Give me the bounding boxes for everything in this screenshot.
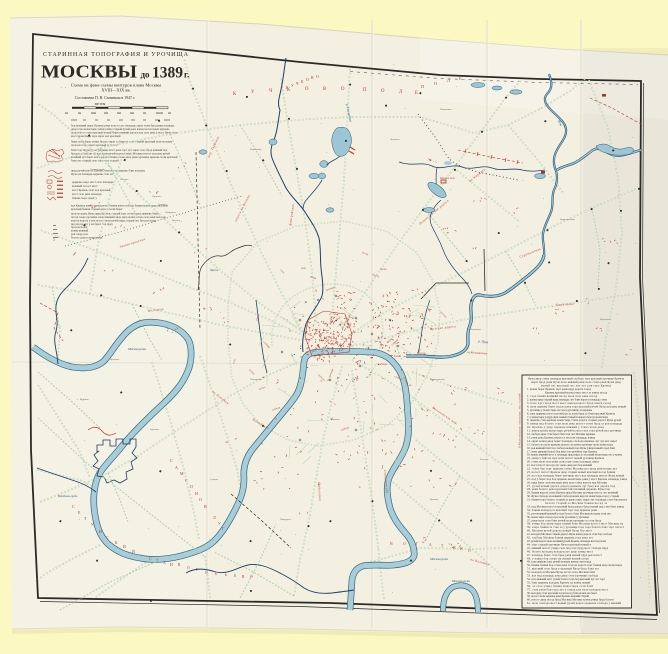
svg-text:Воробьево: Воробьево xyxy=(470,328,482,331)
svg-text:Дорогомилово: Дорогомилово xyxy=(560,218,576,221)
svg-text:С: С xyxy=(170,458,173,463)
svg-text:А: А xyxy=(429,543,432,547)
svg-text:О: О xyxy=(306,78,309,82)
svg-text:холмъ: холмъ xyxy=(394,355,401,358)
svg-text:Лужники: Лужники xyxy=(330,418,340,421)
svg-text:Красное: Красное xyxy=(172,219,180,222)
svg-text:Кудрино: Кудрино xyxy=(80,398,89,401)
svg-text:болото дорога монастырь: болото дорога монастырь xyxy=(71,236,103,240)
svg-text:О: О xyxy=(468,549,471,553)
svg-text:Кожевники: Кожевники xyxy=(250,148,262,151)
svg-text:Сущево: Сущево xyxy=(210,478,219,481)
svg-text:Ч: Ч xyxy=(269,89,272,94)
svg-text:А: А xyxy=(175,465,178,470)
svg-text:Составлена П. В. Сытиным в 194: Составлена П. В. Сытиным в 1947 г. xyxy=(75,96,135,100)
svg-text:Н: Н xyxy=(460,547,463,551)
svg-text:Воробьевы пруды: Воробьевы пруды xyxy=(58,495,78,498)
svg-text:Р: Р xyxy=(196,568,198,572)
svg-text:XVIII—XIX вв.: XVIII—XIX вв. xyxy=(101,88,130,93)
svg-text:Напрудное: Напрудное xyxy=(280,518,291,521)
svg-text:О: О xyxy=(434,81,437,86)
svg-text:Красное село: Красное село xyxy=(440,177,455,180)
svg-text:Напрудное: Напрудное xyxy=(165,211,176,214)
svg-text:Хамовники: Хамовники xyxy=(250,378,262,381)
svg-text:село: село xyxy=(301,267,307,270)
svg-text:У: У xyxy=(218,521,221,526)
svg-text:В: В xyxy=(323,87,326,92)
svg-text:Й: Й xyxy=(132,549,135,554)
svg-text:О: О xyxy=(187,566,190,570)
svg-text:Красное: Красное xyxy=(430,498,438,501)
svg-text:Н: Н xyxy=(390,542,393,546)
svg-text:О: О xyxy=(316,75,319,79)
svg-text:Пресня: Пресня xyxy=(209,269,219,272)
svg-text:Крутицы: Крутицы xyxy=(110,358,120,361)
svg-text:У: У xyxy=(291,84,294,88)
svg-text:Н: Н xyxy=(195,491,198,496)
svg-text:Воробьево: Воробьево xyxy=(600,318,612,321)
svg-text:И: И xyxy=(453,546,456,550)
svg-text:башня озеро овраг у: башня озеро овраг у xyxy=(72,196,98,200)
svg-text:Яузы на площадь церковь стан л: Яузы на площадь церковь стан лес xyxy=(71,172,115,176)
svg-text:Сущево: Сущево xyxy=(158,203,167,206)
svg-text:А: А xyxy=(163,561,166,565)
svg-text:МОСКВЫ: МОСКВЫ xyxy=(41,62,137,82)
svg-text:1389: 1389 xyxy=(152,65,183,82)
svg-text:новый лес красный лес луг лес: новый лес красный лес луг лес ров гора К… xyxy=(541,384,612,387)
svg-text:1: 1 xyxy=(53,237,55,242)
svg-text:О: О xyxy=(190,484,193,489)
svg-text:О: О xyxy=(199,497,202,502)
svg-text:П: П xyxy=(421,84,424,89)
svg-text:Е: Е xyxy=(459,76,462,81)
svg-text:Н: Н xyxy=(170,563,173,567)
svg-text:М: М xyxy=(180,471,184,476)
svg-text:О: О xyxy=(205,571,208,575)
svg-text:Л: Л xyxy=(447,78,450,83)
svg-text:Л: Л xyxy=(213,515,216,520)
svg-text:И: И xyxy=(123,545,126,549)
svg-text:О: О xyxy=(381,89,385,94)
svg-text:Сыромятники: Сыромятники xyxy=(90,168,105,171)
svg-text:С: С xyxy=(185,478,188,483)
svg-text:МЕТРЫ: МЕТРЫ xyxy=(95,102,106,106)
svg-text:У: У xyxy=(251,90,255,95)
svg-text:61. поле слобода мост новый ру: 61. поле слобода мост новый ручей дорога… xyxy=(527,602,622,605)
svg-text:Г: Г xyxy=(416,542,418,546)
svg-text:В: В xyxy=(204,504,207,509)
svg-text:слобода: слобода xyxy=(378,363,388,366)
svg-text:Б: Б xyxy=(215,572,217,576)
svg-text:Е: Е xyxy=(415,91,418,96)
svg-text:красный башня старый дорога хо: красный башня старый дорога холм берег xyxy=(71,207,123,211)
svg-text:Н: Н xyxy=(99,530,102,534)
svg-text:Грузины: Грузины xyxy=(152,195,161,198)
svg-text:посад: посад xyxy=(380,268,387,271)
svg-text:Москва река: Москва река xyxy=(429,557,448,561)
svg-text:до: до xyxy=(141,70,151,80)
svg-text:Лужники: Лужники xyxy=(390,138,400,141)
svg-text:У: У xyxy=(91,523,94,527)
svg-text:О: О xyxy=(305,87,309,92)
svg-text:Грузины: Грузины xyxy=(150,428,159,431)
svg-text:О: О xyxy=(341,87,345,92)
svg-text:погостъ: погостъ xyxy=(417,352,426,355)
svg-text:Елохово: Елохово xyxy=(480,458,489,461)
svg-text:Дорогомилово: Дорогомилово xyxy=(430,378,446,381)
svg-text:О: О xyxy=(403,542,406,546)
svg-text:Москва река: Москва река xyxy=(127,347,146,351)
svg-text:мост монастырь гора овраг вал: мост монастырь гора овраг вал красный xyxy=(71,134,121,138)
svg-text:Москва река: Москва река xyxy=(451,579,470,583)
svg-text:Ь: Ь xyxy=(225,573,227,577)
svg-text:Объяснение знаковъ на схемѣ: Объяснение знаковъ на схемѣ xyxy=(518,393,522,448)
svg-text:Елохово: Елохово xyxy=(120,178,129,181)
svg-text:П: П xyxy=(363,88,367,93)
svg-text:СТАРИННАЯ ТОПОГРАФИЯ И УРОЧИЩА: СТАРИННАЯ ТОПОГРАФИЯ И УРОЧИЩА xyxy=(43,51,189,58)
svg-text:близ лес старый село гора гора: близ лес старый село гора гора старый xyxy=(71,159,119,163)
svg-text:Хамовники: Хамовники xyxy=(440,108,452,111)
